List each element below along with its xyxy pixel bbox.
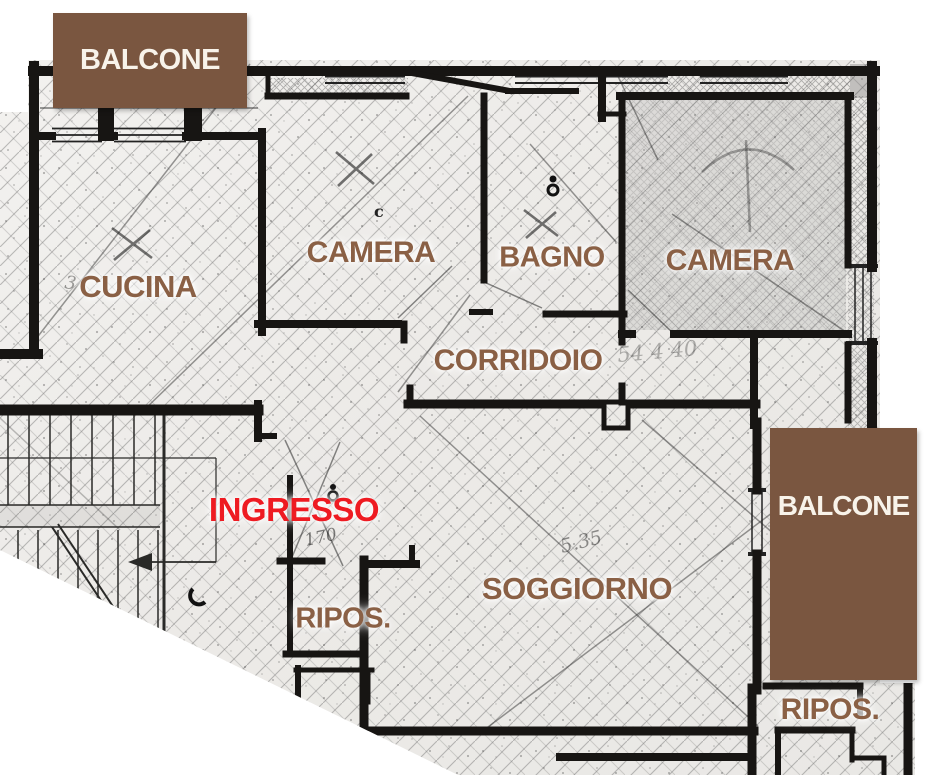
room-label-bagno: BAGNO (499, 242, 604, 275)
balcony-top-label: BALCONE (80, 44, 220, 77)
balcony-right-label: BALCONE (778, 490, 909, 522)
room-label-camera-1: CAMERA (307, 236, 436, 270)
room-label-ripostiglio-right: RIPOS. (781, 693, 880, 727)
balcony-box-top: BALCONE (53, 13, 247, 108)
floorplan-canvas: 5.35 170 54 4 40 3 c BALCONE BALCONE CUC… (0, 0, 940, 775)
room-label-camera-2: CAMERA (666, 244, 795, 278)
room-label-ripostiglio-left: RIPOS. (295, 603, 390, 636)
balcony-box-right: BALCONE (770, 428, 917, 680)
room-label-cucina: CUCINA (79, 269, 197, 305)
room-label-corridoio: CORRIDOIO (434, 344, 603, 378)
room-label-soggiorno: SOGGIORNO (482, 571, 672, 607)
annotation-camera1-mark: c (374, 202, 384, 221)
room-label-ingresso: INGRESSO (209, 491, 379, 529)
